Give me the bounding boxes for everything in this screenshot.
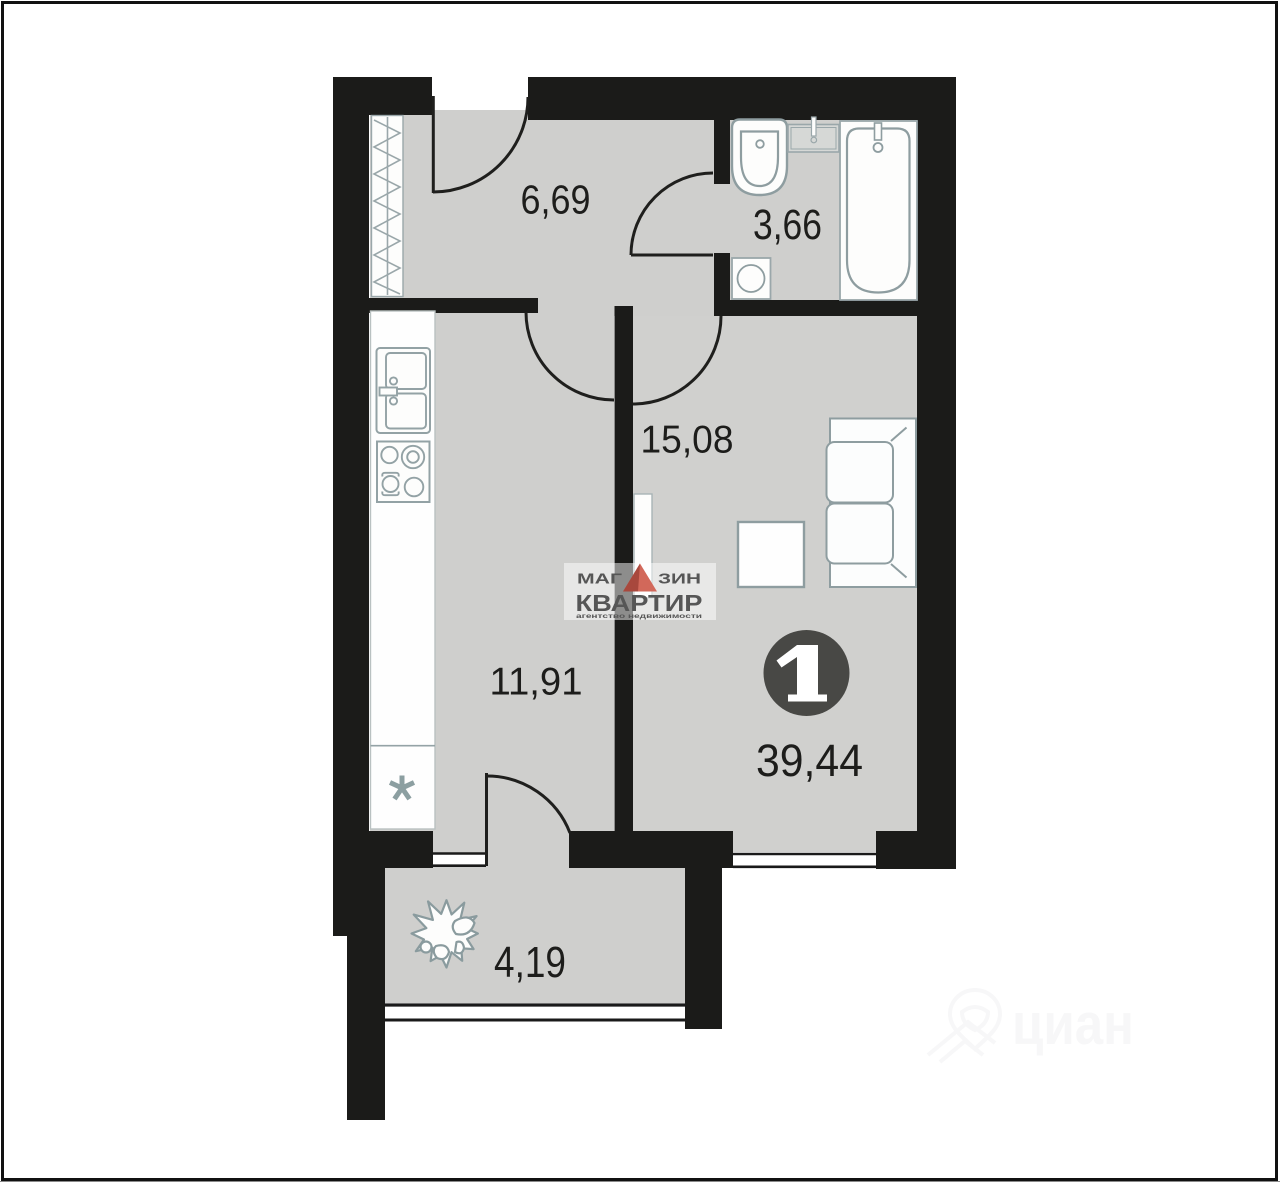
svg-text:циан: циан xyxy=(1012,992,1134,1057)
svg-text:15,08: 15,08 xyxy=(641,419,734,462)
svg-text:МАГ: МАГ xyxy=(577,571,623,588)
svg-text:ЗИН: ЗИН xyxy=(658,571,701,588)
svg-text:6,69: 6,69 xyxy=(521,177,591,223)
svg-text:4,19: 4,19 xyxy=(494,938,566,987)
svg-text:КВАРТИР: КВАРТИР xyxy=(576,590,703,616)
svg-text:11,91: 11,91 xyxy=(490,661,583,704)
svg-text:3,66: 3,66 xyxy=(753,201,822,249)
svg-text:агентство недвижимости: агентство недвижимости xyxy=(576,613,702,620)
svg-text:39,44: 39,44 xyxy=(756,735,863,786)
